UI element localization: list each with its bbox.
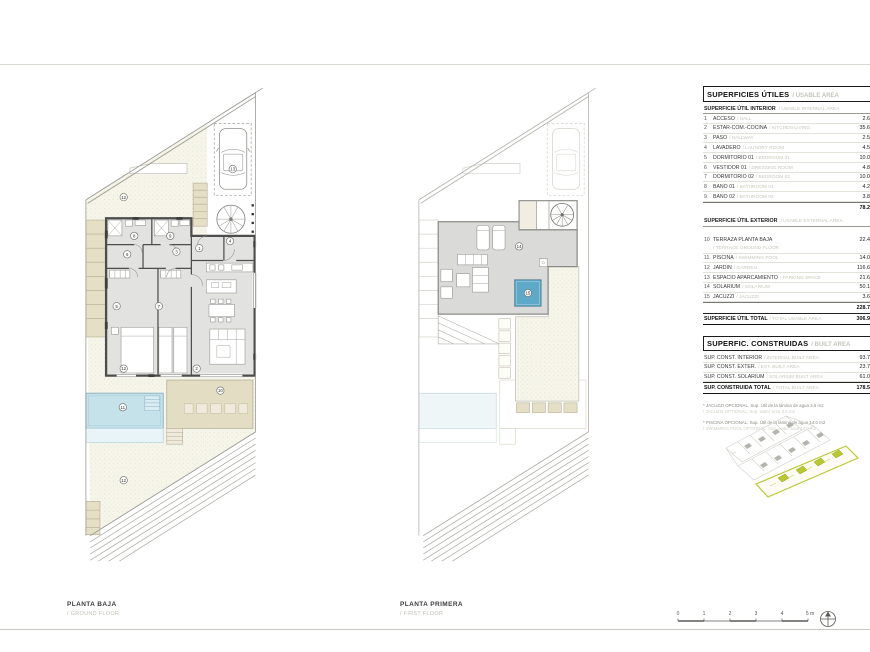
svg-text:12: 12 bbox=[121, 366, 126, 371]
table-row: SUP. CONST. INTERIOR/ INTERNAL BUILT ARE… bbox=[703, 353, 870, 363]
page-top-rule bbox=[0, 64, 870, 65]
svg-text:10: 10 bbox=[218, 388, 223, 393]
svg-text:13: 13 bbox=[230, 167, 235, 172]
table-row: 9BAÑO 02/ BATHROOM 023.80 bbox=[703, 192, 870, 202]
table-row: 13ESPACIO APARCAMIENTO/ PARKING SPACE21.… bbox=[703, 273, 870, 283]
highlighted-row bbox=[756, 446, 858, 497]
ghost-car bbox=[553, 129, 580, 190]
table-row: 1ACCESO/ HALL2.60 bbox=[703, 114, 870, 124]
svg-text:11: 11 bbox=[121, 405, 126, 410]
entry-steps bbox=[193, 183, 207, 226]
built-area-title: SUPERFIC. CONSTRUIDAS/ BUILT AREA bbox=[703, 336, 870, 352]
car bbox=[216, 129, 249, 190]
svg-text:5 m: 5 m bbox=[806, 611, 814, 617]
first-floor-subtitle: / FIRST FLOOR bbox=[400, 611, 443, 617]
table-row: 4LAVADERO/ LAUNDRY ROOM4.50 bbox=[703, 143, 870, 153]
internal-total: 78.20 bbox=[703, 202, 870, 212]
first-floor-plan: 14 15 bbox=[373, 75, 623, 620]
drawing-sheet: 8 9 6 3 1 4 5 7 2 13 12 12 11 10 12 bbox=[0, 0, 870, 652]
usable-area-title: SUPERFICIES ÚTILES / USABLE AREA bbox=[703, 86, 870, 102]
external-area-header: SUPERFICIE ÚTIL EXTERIOR/ USABLE EXTERNA… bbox=[703, 216, 870, 227]
svg-text:3: 3 bbox=[755, 611, 758, 617]
north-arrow-icon bbox=[821, 612, 836, 627]
table-row: SUP. CONST. SOLARIUM/ SOLARIUM BUILT ARE… bbox=[703, 373, 870, 383]
site-key-map bbox=[722, 402, 867, 504]
first-floor-title: PLANTA PRIMERA bbox=[400, 601, 463, 608]
ground-floor-subtitle: / GROUND FLOOR bbox=[67, 611, 119, 617]
table-row: 7DORMITORIO 02/ BEDROOM 0210.00 bbox=[703, 173, 870, 183]
table-row: 10TERRAZA PLANTA BAJA/ TERRACE GROUND FL… bbox=[703, 227, 870, 254]
svg-text:4: 4 bbox=[781, 611, 784, 617]
table-row: 5DORMITORIO 01/ BEDROOM 0110.00 bbox=[703, 153, 870, 163]
built-grand-total: SUP. CONSTRUIDA TOTAL/ TOTAL BUILT AREA … bbox=[703, 382, 870, 394]
usable-grand-total: SUPERFICIE ÚTIL TOTAL/ TOTAL USABLE AREA… bbox=[703, 313, 870, 325]
planter bbox=[130, 163, 187, 173]
ground-floor-plan: 8 9 6 3 1 4 5 7 2 13 12 12 11 10 12 bbox=[40, 75, 290, 620]
svg-text:12: 12 bbox=[121, 478, 126, 483]
parking-space bbox=[214, 123, 251, 195]
svg-text:0: 0 bbox=[677, 611, 680, 617]
table-row: 15JACUZZI/ JACUZZI3.60 bbox=[703, 293, 870, 303]
table-row: 2ESTAR-COM.-COCINA/ KITCHEN-LIVING35.60 bbox=[703, 124, 870, 134]
svg-text:12: 12 bbox=[121, 195, 126, 200]
svg-text:14: 14 bbox=[517, 244, 522, 249]
swimming-pool bbox=[86, 393, 163, 442]
svg-text:2: 2 bbox=[729, 611, 732, 617]
table-row: 12JARDÍN/ GARDEN116.60 bbox=[703, 263, 870, 273]
street-hatch bbox=[423, 432, 588, 563]
table-row: 6VESTIDOR 01/ DRESSING ROOM4.80 bbox=[703, 163, 870, 173]
table-row: 8BAÑO 01/ BATHROOM 014.20 bbox=[703, 182, 870, 192]
ground-floor-title: PLANTA BAJA bbox=[67, 601, 117, 608]
area-tables: SUPERFICIES ÚTILES / USABLE AREA SUPERFI… bbox=[703, 86, 870, 432]
table-row: 3PASO/ HALLWAY2.50 bbox=[703, 134, 870, 144]
internal-area-header: SUPERFICIE ÚTIL INTERIOR/ USABLE INTERNA… bbox=[703, 104, 870, 115]
table-row: SUP. CONST. EXTER./ EXT. BUILT AREA23.70 bbox=[703, 363, 870, 373]
table-row: 14SOLARIUM/ SOLARIUM50.10 bbox=[703, 283, 870, 293]
table-row: 11PISCINA/ SWIMMING POOL14.00 bbox=[703, 254, 870, 264]
stair-room bbox=[519, 201, 577, 230]
scale-bar: 0 1 2 3 4 5 m bbox=[668, 602, 848, 636]
external-total: 228.70 bbox=[703, 302, 870, 312]
svg-text:1: 1 bbox=[703, 611, 706, 617]
exterior-stair bbox=[438, 316, 500, 344]
svg-text:15: 15 bbox=[525, 291, 530, 296]
